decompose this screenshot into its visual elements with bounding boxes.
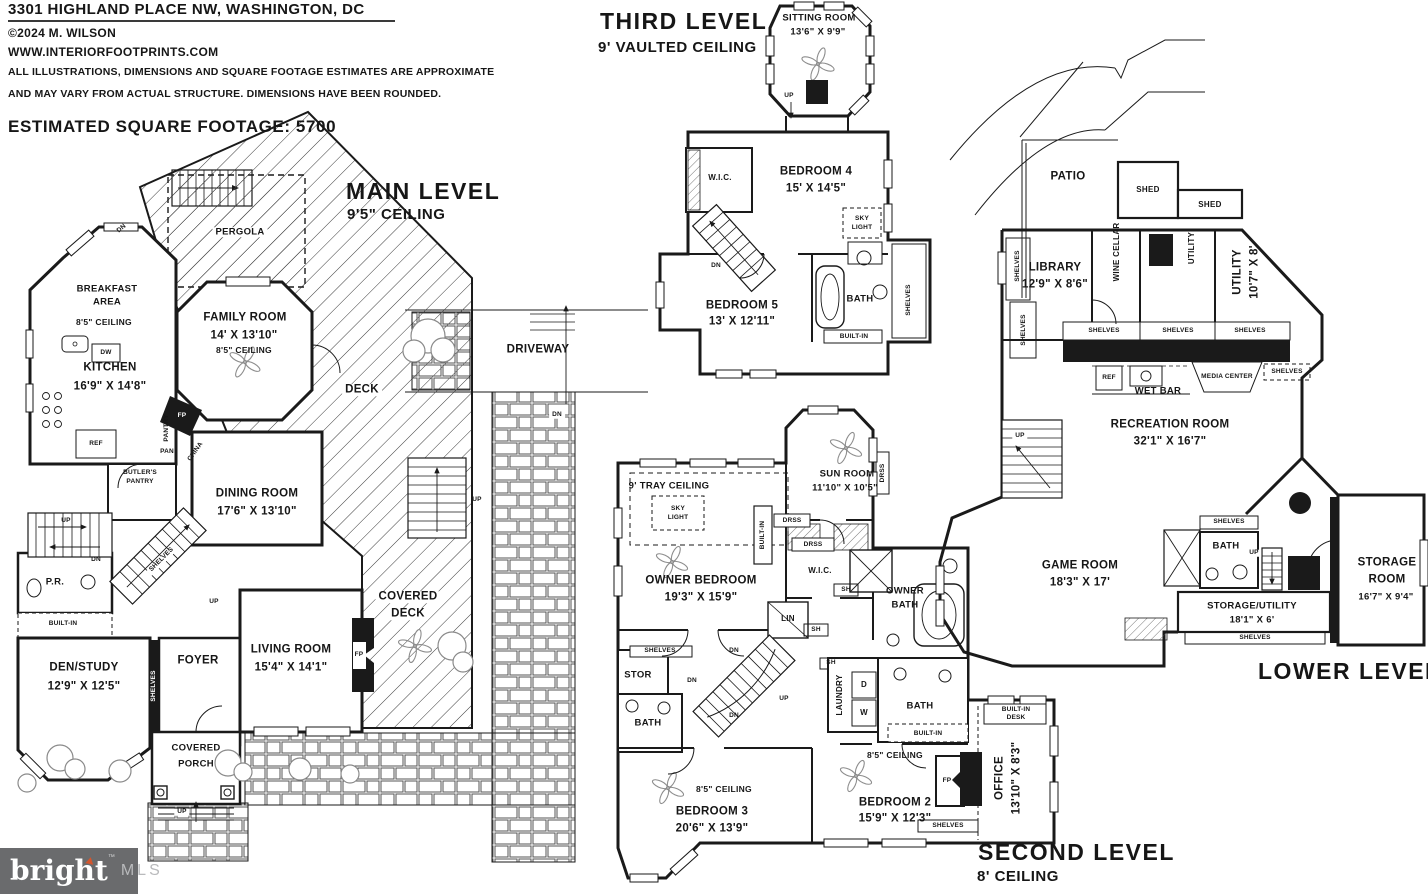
lower-level-title: LOWER LEVEL	[1258, 660, 1428, 683]
room-label-sitting: SITTING ROOM	[782, 13, 855, 23]
tag-shelves-media: SHELVES	[1271, 369, 1302, 376]
tag-built-in-bath: BUILT-IN	[914, 731, 943, 738]
room-label-storage-room-2: ROOM	[1369, 574, 1406, 586]
room-dims-library: 12'9" X 8'6"	[1022, 279, 1088, 291]
room-label-laundry: LAUNDRY	[836, 675, 844, 716]
room-label-bath-lower: BATH	[1213, 541, 1240, 551]
room-label-stor: STOR	[624, 670, 651, 680]
room-label-den: DEN/STUDY	[49, 662, 118, 674]
tag-shelves-bath-lower: SHELVES	[1213, 519, 1244, 526]
tag-sh-3: SH	[826, 660, 835, 667]
room-label-wet-bar: WET BAR	[1135, 386, 1181, 396]
main-level-plan	[18, 112, 648, 862]
room-label-breakfast: BREAKFAST	[77, 284, 138, 294]
tag-up-main-stair: UP	[209, 599, 218, 606]
tag-dresser-2: DRSS	[804, 542, 823, 549]
room-label-bath-third: BATH	[847, 294, 874, 304]
tag-shelves-row-2: SHELVES	[1162, 328, 1193, 335]
tag-shelves-den: SHELVES	[151, 670, 158, 701]
room-label-storage-utility: STORAGE/UTILITY	[1207, 601, 1297, 611]
tag-shelves-row-3: SHELVES	[1234, 328, 1265, 335]
tag-built-in-desk-2: DESK	[1007, 715, 1026, 722]
second-level-title: SECOND LEVEL	[978, 841, 1175, 864]
room-label-rec: RECREATION ROOM	[1111, 419, 1230, 431]
tag-dresser-3: DRSS	[880, 464, 887, 483]
room-dims-den: 12'9" X 12'5"	[48, 681, 121, 693]
tag-up-deck-stair: UP	[472, 497, 481, 504]
lower-level-plan	[936, 40, 1428, 666]
tag-washer: W	[860, 709, 868, 717]
room-dims-bed2: 15'9" X 12'3"	[859, 813, 932, 825]
tag-shelves-third: SHELVES	[906, 284, 913, 315]
square-footage-text: ESTIMATED SQUARE FOOTAGE: 5700	[8, 118, 336, 135]
room-dims-family: 14' X 13'10"	[211, 330, 278, 342]
room-label-foyer: FOYER	[177, 655, 218, 667]
room-dims-bed5: 13' X 12'11"	[709, 316, 775, 328]
room-label-dining: DINING ROOM	[216, 488, 299, 500]
room-label-wine-cellar: WINE CELLAR	[1113, 223, 1121, 282]
room-label-driveway: DRIVEWAY	[507, 344, 570, 356]
room-label-deck: DECK	[342, 384, 382, 396]
ceiling-note-breakfast: 8'5" CEILING	[76, 318, 132, 327]
room-label-bed2: BEDROOM 2	[859, 797, 931, 809]
tag-up-third: UP	[784, 93, 793, 100]
room-label-kitchen: KITCHEN	[83, 362, 136, 374]
tag-sh-2: SH	[811, 627, 820, 634]
tag-fp-bed2: FP	[943, 778, 952, 785]
tag-pantry: PANTRY	[164, 414, 171, 441]
tag-dryer: D	[861, 681, 867, 689]
tag-skylight-second: SKY	[671, 506, 685, 513]
third-level-ceiling: 9' VAULTED CEILING	[598, 40, 757, 55]
ceiling-note-bed3: 8'5" CEILING	[696, 785, 752, 794]
tag-ref-wetbar: REF	[1102, 375, 1116, 382]
tag-ref: REF	[89, 441, 103, 448]
room-label-bath-right: BATH	[907, 701, 934, 711]
room-label-covered-deck-2: DECK	[388, 608, 428, 620]
tag-up-storage: UP	[1246, 550, 1261, 557]
tag-fp-living: FP	[355, 652, 364, 659]
room-label-shed-1: SHED	[1136, 186, 1159, 194]
ceiling-note-family: 8'5" CEILING	[216, 346, 272, 355]
page-title: 3301 HIGHLAND PLACE NW, WASHINGTON, DC	[8, 2, 395, 22]
tag-skylight-third: SKY	[855, 216, 869, 223]
tag-up-lower: UP	[1012, 433, 1027, 440]
room-dims-storage-utility: 18'1" X 6'	[1230, 615, 1275, 625]
tag-shelves-stor: SHELVES	[644, 648, 675, 655]
tag-shelves-storage: SHELVES	[1239, 635, 1270, 642]
room-label-bath-left: BATH	[635, 718, 662, 728]
tag-up-porch: UP	[174, 809, 189, 816]
website-text: WWW.INTERIORFOOTPRINTS.COM	[8, 46, 218, 58]
room-dims-sunroom: 11'10" X 10'5"	[812, 483, 878, 493]
tag-tray-ceiling: 9' TRAY CEILING	[629, 481, 710, 491]
room-dims-living: 15'4" X 14'1"	[255, 662, 328, 674]
room-label-wic-third: W.I.C.	[708, 174, 732, 182]
room-label-sunroom: SUN ROOM	[820, 469, 875, 479]
tag-dn-walkway: DN	[549, 412, 565, 419]
logo-tm-mark: ™	[108, 854, 115, 861]
floorplan-page: 3301 HIGHLAND PLACE NW, WASHINGTON, DC ©…	[0, 0, 1428, 894]
room-label-owner-bath: OWNER	[886, 586, 924, 596]
room-label-living: LIVING ROOM	[251, 644, 332, 656]
tag-shelves-lib-1: SHELVES	[1015, 250, 1022, 281]
room-label-covered-porch: COVERED	[171, 743, 220, 753]
room-label-family: FAMILY ROOM	[203, 312, 286, 324]
logo-flame-icon	[85, 856, 94, 865]
room-label-breakfast-2: AREA	[93, 297, 121, 307]
tag-pan: PAN	[160, 449, 174, 456]
room-dims-sitting: 13'6" X 9'9"	[790, 27, 845, 37]
room-label-office: OFFICE	[994, 756, 1006, 800]
brightmls-logo: bright ™ MLS	[0, 848, 138, 894]
room-label-covered-deck: COVERED	[376, 591, 441, 603]
room-label-utility-small: UTILITY	[1188, 232, 1196, 264]
copyright-text: ©2024 M. WILSON	[8, 27, 116, 39]
tag-dn-stair: DN	[91, 557, 101, 564]
tag-dn-second-2: DN	[729, 648, 739, 655]
room-label-owner-bath-2: BATH	[892, 600, 919, 610]
room-dims-dining: 17'6" X 13'10"	[217, 506, 296, 518]
room-dims-bed3: 20'6" X 13'9"	[676, 823, 749, 835]
tag-built-in-den: BUILT-IN	[49, 621, 78, 628]
room-label-bed5: BEDROOM 5	[706, 300, 778, 312]
tag-dn-second-3: DN	[729, 713, 739, 720]
room-label-owner-bed: OWNER BEDROOM	[645, 575, 756, 587]
room-label-butlers-pantry: BUTLER'S	[123, 470, 157, 477]
main-level-title: MAIN LEVEL	[346, 180, 500, 203]
tag-up-second: UP	[779, 696, 788, 703]
tag-built-in-owner: BUILT-IN	[760, 521, 767, 550]
disclaimer-line-2: AND MAY VARY FROM ACTUAL STRUCTURE. DIME…	[8, 89, 441, 100]
room-label-covered-porch-2: PORCH	[178, 759, 214, 769]
third-level-title: THIRD LEVEL	[600, 10, 767, 33]
room-dims-bed4: 15' X 14'5"	[786, 183, 846, 195]
room-dims-storage-room: 16'7" X 9'4"	[1358, 592, 1413, 602]
tag-dresser-1: DRSS	[783, 518, 802, 525]
tag-dw: DW	[100, 350, 111, 357]
room-dims-owner-bed: 19'3" X 15'9"	[665, 592, 738, 604]
tag-shelves-row-1: SHELVES	[1088, 328, 1119, 335]
room-label-wic-second: W.I.C.	[808, 567, 832, 575]
tag-shelves-lib-2: SHELVES	[1021, 314, 1028, 345]
tag-skylight-third-2: LIGHT	[852, 225, 873, 232]
room-dims-office: 13'10" X 8'3"	[1011, 742, 1023, 815]
room-label-butlers-pantry-2: PANTRY	[126, 479, 153, 486]
room-label-media-center: MEDIA CENTER	[1201, 374, 1253, 381]
room-dims-kitchen: 16'9" X 14'8"	[74, 381, 147, 393]
tag-up-stair: UP	[61, 518, 70, 525]
tag-skylight-second-2: LIGHT	[668, 515, 689, 522]
ceiling-note-bed2: 8'5" CEILING	[867, 751, 923, 760]
room-label-patio: PATIO	[1051, 171, 1086, 183]
tag-built-in-desk: BUILT-IN	[1002, 707, 1031, 714]
room-dims-utility-2: 10'7" X 8'	[1249, 245, 1261, 299]
tag-shelves-bed2: SHELVES	[932, 823, 963, 830]
tag-dn-second-1: DN	[687, 678, 697, 685]
room-label-shed-2: SHED	[1198, 201, 1221, 209]
room-dims-game: 18'3" X 17'	[1050, 577, 1110, 589]
tag-linen: LIN	[781, 615, 795, 623]
tag-sh-1: SH	[841, 587, 850, 594]
room-label-storage-room: STORAGE	[1358, 557, 1417, 569]
tag-built-in-third: BUILT-IN	[840, 334, 869, 341]
room-label-bed4: BEDROOM 4	[780, 166, 852, 178]
room-dims-rec: 32'1" X 16'7"	[1134, 436, 1207, 448]
tag-dn-third: DN	[711, 263, 721, 270]
second-level-ceiling: 8' CEILING	[977, 869, 1059, 884]
main-level-ceiling: 9'5" CEILING	[347, 207, 445, 222]
disclaimer-line-1: ALL ILLUSTRATIONS, DIMENSIONS AND SQUARE…	[8, 67, 494, 78]
room-label-utility-2: UTILITY	[1232, 249, 1244, 295]
room-label-game: GAME ROOM	[1042, 560, 1118, 572]
logo-mls-text: MLS	[121, 862, 163, 880]
room-label-pergola: PERGOLA	[212, 227, 267, 237]
room-label-bed3: BEDROOM 3	[676, 806, 748, 818]
tag-fp-dining: FP	[178, 413, 187, 420]
room-label-powder-room: P.R.	[46, 577, 64, 587]
room-label-library: LIBRARY	[1029, 262, 1082, 274]
